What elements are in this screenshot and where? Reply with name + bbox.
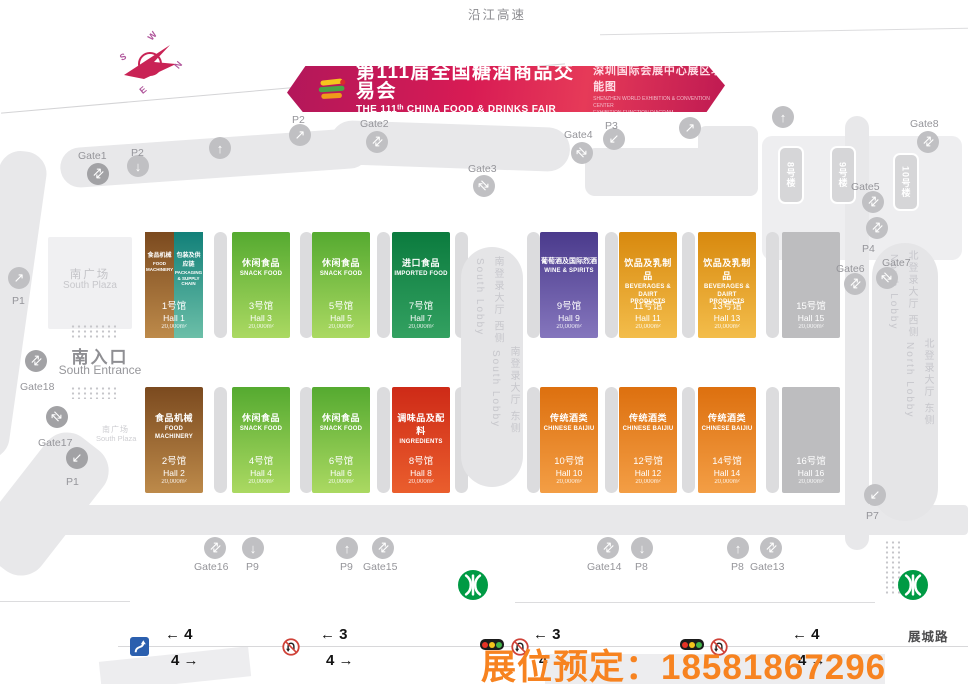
building-label: 10号楼 bbox=[900, 166, 913, 198]
gate-label: P1 bbox=[66, 476, 79, 488]
hall-category-en: SNACK FOOD bbox=[313, 426, 369, 434]
hall-number-cn: 1号馆 bbox=[145, 298, 203, 312]
hall-number-block: 9号馆Hall 920,000m² bbox=[540, 298, 598, 330]
south-entrance-label-en: South Entrance bbox=[50, 363, 150, 377]
gate-label: P8 bbox=[635, 561, 648, 573]
hall-hall-8: 调味品及配料INGREDIENTS8号馆Hall 820,000m² bbox=[392, 387, 450, 493]
hall-hall-2: 食品机械FOOD MACHINERY2号馆Hall 220,000m² bbox=[145, 387, 203, 493]
gate-label: Gate4 bbox=[564, 129, 593, 141]
lane-count-right: 4 → bbox=[326, 652, 354, 669]
Gate17-marker-icon: ⇅ bbox=[41, 401, 72, 432]
no-uturn-sign-icon bbox=[282, 638, 300, 656]
hall-number-cn: 12号馆 bbox=[619, 453, 677, 467]
hall-number-en: Hall 15 bbox=[782, 313, 840, 323]
banner-title-block: 第111届全国糖酒商品交易会 THE 111ᵗʰ CHINA FOOD & DR… bbox=[356, 63, 579, 115]
hall-hall-16: 16号馆Hall 1620,000m² bbox=[782, 387, 840, 493]
hall-area: 20,000m² bbox=[782, 324, 840, 330]
hall-category-cn: 葡萄酒及国际烈酒 bbox=[541, 256, 597, 266]
P1-marker-icon: ↗ bbox=[8, 267, 30, 289]
hall-hall-3: 休闲食品SNACK FOOD3号馆Hall 320,000m² bbox=[232, 232, 290, 338]
fair-logo-icon bbox=[317, 75, 348, 103]
metro-logo-icon bbox=[898, 570, 928, 600]
hall-category: 休闲食品SNACK FOOD bbox=[313, 256, 369, 279]
highway-label: 沿江高速 bbox=[468, 4, 526, 23]
hall-area: 20,000m² bbox=[312, 324, 370, 330]
banner-subtitle-en1: SHENZHEN WORLD EXHIBITION & CONVENTION C… bbox=[593, 96, 725, 110]
hall-number-cn: 7号馆 bbox=[392, 298, 450, 312]
north-lobby-east-label-en: North Lobby bbox=[904, 342, 915, 418]
hall-category-en: IMPORTED FOOD bbox=[393, 271, 449, 279]
hall-number-en: Hall 1 bbox=[145, 313, 203, 323]
hall-category: 食品机械FOOD MACHINERY bbox=[146, 250, 173, 272]
hall-number-cn: 13号馆 bbox=[698, 298, 756, 312]
hall-pillar bbox=[527, 232, 540, 338]
hall-area: 20,000m² bbox=[619, 324, 677, 330]
hall-hall-14: 传统酒类CHINESE BAIJIU14号馆Hall 1420,000m² bbox=[698, 387, 756, 493]
hall-area: 20,000m² bbox=[145, 324, 203, 330]
hall-category-cn: 休闲食品 bbox=[233, 256, 289, 269]
hall-number-en: Hall 4 bbox=[232, 468, 290, 478]
hall-number-en: Hall 3 bbox=[232, 313, 290, 323]
hall-category-cn: 传统酒类 bbox=[699, 411, 755, 424]
hall-number-block: 4号馆Hall 420,000m² bbox=[232, 453, 290, 485]
P1-marker-icon: ↙ bbox=[66, 447, 88, 469]
building-label: 8号楼 bbox=[785, 162, 798, 188]
booking-phone-text: 展位预定：18581867296 bbox=[481, 639, 886, 684]
hall-number-en: Hall 6 bbox=[312, 468, 370, 478]
hall-number-block: 16号馆Hall 1620,000m² bbox=[782, 453, 840, 485]
hall-pillar bbox=[214, 387, 227, 493]
hall-number-block: 15号馆Hall 1520,000m² bbox=[782, 298, 840, 330]
hall-area: 20,000m² bbox=[540, 479, 598, 485]
lane-count-left: ← 4 bbox=[165, 626, 193, 643]
hall-number-en: Hall 11 bbox=[619, 313, 677, 323]
lane-count-value: 4 bbox=[184, 626, 192, 643]
hall-number-block: 8号馆Hall 820,000m² bbox=[392, 453, 450, 485]
bottom-road-label: 展城路 bbox=[908, 626, 949, 645]
hall-number-block: 14号馆Hall 1420,000m² bbox=[698, 453, 756, 485]
hall-number-en: Hall 7 bbox=[392, 313, 450, 323]
gate-label: Gate8 bbox=[910, 118, 939, 130]
hall-number-block: 2号馆Hall 220,000m² bbox=[145, 453, 203, 485]
hall-category-en: FOOD MACHINERY bbox=[146, 426, 202, 441]
gate-label: P8 bbox=[731, 561, 744, 573]
south-plaza-label-en: South Plaza bbox=[56, 280, 124, 291]
south-lobby-east-label-cn: 南登录大厅 东侧 bbox=[506, 346, 521, 435]
hall-number-block: 6号馆Hall 620,000m² bbox=[312, 453, 370, 485]
hall-category: 传统酒类CHINESE BAIJIU bbox=[699, 411, 755, 434]
building-10: 10号楼 bbox=[893, 153, 919, 211]
gate-label: Gate14 bbox=[587, 561, 621, 573]
gate-label: P4 bbox=[862, 243, 875, 255]
u-turn-sign-icon bbox=[130, 637, 149, 656]
hall-area: 20,000m² bbox=[698, 324, 756, 330]
hall-area: 20,000m² bbox=[540, 324, 598, 330]
hall-number-en: Hall 5 bbox=[312, 313, 370, 323]
hall-category: 传统酒类CHINESE BAIJIU bbox=[541, 411, 597, 434]
banner-subtitle-en2: EXHIBITION FUNCTION DIAGRAM bbox=[593, 110, 725, 117]
hall-number-block: 10号馆Hall 1020,000m² bbox=[540, 453, 598, 485]
south-plaza-small-label-en: South Plaza bbox=[96, 434, 136, 443]
metro-logo-icon bbox=[458, 570, 488, 600]
gate-label: Gate15 bbox=[363, 561, 397, 573]
hall-category-cn: 传统酒类 bbox=[620, 411, 676, 424]
south-lobby-east-label-en: South Lobby bbox=[490, 350, 501, 428]
hall-category-cn: 饮品及乳制品 bbox=[620, 256, 676, 282]
hall-number-cn: 15号馆 bbox=[782, 298, 840, 312]
Gate18-marker-icon: ⇅ bbox=[20, 345, 51, 376]
hall-pillar bbox=[377, 232, 390, 338]
hall-category-en: WINE & SPIRITS bbox=[541, 268, 597, 276]
hall-pillar bbox=[214, 232, 227, 338]
road-shape bbox=[698, 126, 758, 196]
arrow-left-icon: ← bbox=[165, 626, 184, 643]
lane-count-left: ← 3 bbox=[320, 626, 348, 643]
hall-category: 葡萄酒及国际烈酒WINE & SPIRITS bbox=[541, 256, 597, 276]
gate-label: Gate1 bbox=[78, 150, 107, 162]
hall-category: 休闲食品SNACK FOOD bbox=[233, 411, 289, 434]
gate-label: Gate7 bbox=[882, 257, 911, 269]
gate-label: Gate2 bbox=[360, 118, 389, 130]
gate-label: Gate18 bbox=[20, 381, 54, 393]
hall-number-en: Hall 16 bbox=[782, 468, 840, 478]
hall-area: 20,000m² bbox=[312, 479, 370, 485]
gate-label: P1 bbox=[12, 295, 25, 307]
arrow-right-icon: → bbox=[179, 652, 198, 669]
gate-label: Gate6 bbox=[836, 263, 865, 275]
hall-hall-5: 休闲食品SNACK FOOD5号馆Hall 520,000m² bbox=[312, 232, 370, 338]
hall-category-cn: 休闲食品 bbox=[233, 411, 289, 424]
hall-number-cn: 2号馆 bbox=[145, 453, 203, 467]
hall-number-cn: 5号馆 bbox=[312, 298, 370, 312]
hall-category-cn: 休闲食品 bbox=[313, 411, 369, 424]
hall-category-cn: 饮品及乳制品 bbox=[699, 256, 755, 282]
P9-marker-icon: ↓ bbox=[242, 537, 264, 559]
hall-category-cn: 传统酒类 bbox=[541, 411, 597, 424]
hall-area: 20,000m² bbox=[619, 479, 677, 485]
hall-number-cn: 6号馆 bbox=[312, 453, 370, 467]
Gate13-marker-icon: ⇅ bbox=[755, 532, 786, 563]
hall-category: 进口食品IMPORTED FOOD bbox=[393, 256, 449, 279]
escalator-dots bbox=[70, 386, 116, 399]
hall-number-cn: 3号馆 bbox=[232, 298, 290, 312]
building-8: 8号楼 bbox=[778, 146, 804, 204]
hall-number-en: Hall 10 bbox=[540, 468, 598, 478]
compass-icon: W S N E bbox=[118, 34, 184, 96]
road-shape bbox=[60, 505, 968, 535]
hall-number-en: Hall 8 bbox=[392, 468, 450, 478]
hall-number-en: Hall 2 bbox=[145, 468, 203, 478]
hall-hall-15: 15号馆Hall 1520,000m² bbox=[782, 232, 840, 338]
hall-area: 20,000m² bbox=[392, 324, 450, 330]
hall-hall-1: 食品机械FOOD MACHINERY包装及供应链PACKAGING & SUPP… bbox=[145, 232, 203, 338]
gate-marker-icon: ↑ bbox=[209, 137, 231, 159]
hall-number-cn: 4号馆 bbox=[232, 453, 290, 467]
gate-label: P2 bbox=[292, 114, 305, 126]
banner-subtitle-en: SHENZHEN WORLD EXHIBITION & CONVENTION C… bbox=[593, 96, 725, 117]
hall-number-block: 7号馆Hall 720,000m² bbox=[392, 298, 450, 330]
hall-pillar bbox=[605, 387, 618, 493]
P7-marker-icon: ↙ bbox=[864, 484, 886, 506]
hall-number-cn: 16号馆 bbox=[782, 453, 840, 467]
hall-number-en: Hall 14 bbox=[698, 468, 756, 478]
south-lobby-west-label-cn: 南登录大厅 西侧 bbox=[490, 256, 505, 345]
exhibition-map: 沿江高速 W S N E 第111届全国糖酒商品交易会 THE 111ᵗʰ CH… bbox=[0, 0, 968, 684]
P2-marker-icon: ↗ bbox=[289, 124, 311, 146]
hall-category-cn: 休闲食品 bbox=[313, 256, 369, 269]
hall-category: 休闲食品SNACK FOOD bbox=[233, 256, 289, 279]
hall-number-cn: 14号馆 bbox=[698, 453, 756, 467]
hall-number-cn: 8号馆 bbox=[392, 453, 450, 467]
gate-marker-icon: ↗ bbox=[679, 117, 701, 139]
hall-category: 调味品及配料INGREDIENTS bbox=[393, 411, 449, 447]
hall-area: 20,000m² bbox=[782, 479, 840, 485]
hall-number-block: 13号馆Hall 1320,000m² bbox=[698, 298, 756, 330]
gate-label: Gate5 bbox=[851, 181, 880, 193]
road-shape bbox=[515, 602, 875, 603]
gate-label: P3 bbox=[605, 120, 618, 132]
gate-label: Gate17 bbox=[38, 437, 72, 449]
hall-number-cn: 9号馆 bbox=[540, 298, 598, 312]
hall-pillar bbox=[377, 387, 390, 493]
Gate14-marker-icon: ⇅ bbox=[592, 532, 623, 563]
north-lobby-east-label-cn: 北登录大厅 东侧 bbox=[920, 338, 935, 427]
gate-label: Gate3 bbox=[468, 163, 497, 175]
lane-count-right: 4 → bbox=[171, 652, 199, 669]
hall-hall-7: 进口食品IMPORTED FOOD7号馆Hall 720,000m² bbox=[392, 232, 450, 338]
gate-label: P2 bbox=[131, 147, 144, 159]
arrow-left-icon: ← bbox=[320, 626, 339, 643]
gate-label: P7 bbox=[866, 510, 879, 522]
hall-category-en: CHINESE BAIJIU bbox=[541, 426, 597, 434]
hall-number-block: 1号馆Hall 120,000m² bbox=[145, 298, 203, 330]
hall-category: 食品机械FOOD MACHINERY bbox=[146, 411, 202, 441]
hall-pillar bbox=[766, 232, 779, 338]
building-9: 9号楼 bbox=[830, 146, 856, 204]
hall-pillar bbox=[605, 232, 618, 338]
hall-category-cn: 包装及供应链 bbox=[175, 250, 202, 268]
arrow-right-icon: → bbox=[334, 652, 353, 669]
hall-area: 20,000m² bbox=[698, 479, 756, 485]
hall-category-en: FOOD MACHINERY bbox=[146, 261, 173, 272]
hall-category-cn: 进口食品 bbox=[393, 256, 449, 269]
P8-marker-icon: ↑ bbox=[727, 537, 749, 559]
gate-label: Gate13 bbox=[750, 561, 784, 573]
hall-number-block: 12号馆Hall 1220,000m² bbox=[619, 453, 677, 485]
hall-category-cn: 食品机械 bbox=[146, 250, 173, 259]
hall-number-en: Hall 12 bbox=[619, 468, 677, 478]
event-banner: 第111届全国糖酒商品交易会 THE 111ᵗʰ CHINA FOOD & DR… bbox=[287, 66, 725, 112]
hall-number-en: Hall 9 bbox=[540, 313, 598, 323]
south-lobby-west-label-en: South Lobby bbox=[474, 258, 485, 336]
gate-marker-icon: ↑ bbox=[772, 106, 794, 128]
hall-pillar bbox=[766, 387, 779, 493]
hall-pillar bbox=[682, 232, 695, 338]
hall-area: 20,000m² bbox=[392, 479, 450, 485]
banner-subtitle-cn: 深圳国际会展中心展区功能图 bbox=[593, 62, 725, 94]
hall-category-en: INGREDIENTS bbox=[393, 439, 449, 447]
hall-hall-12: 传统酒类CHINESE BAIJIU12号馆Hall 1220,000m² bbox=[619, 387, 677, 493]
hall-area: 20,000m² bbox=[145, 479, 203, 485]
building-label: 9号楼 bbox=[837, 162, 850, 188]
gate-label: P9 bbox=[340, 561, 353, 573]
hall-area: 20,000m² bbox=[232, 479, 290, 485]
hall-hall-13: 饮品及乳制品BEVERAGES & DAIRT PRODUCTS13号馆Hall… bbox=[698, 232, 756, 338]
hall-pillar bbox=[682, 387, 695, 493]
hall-number-cn: 11号馆 bbox=[619, 298, 677, 312]
hall-category-cn: 调味品及配料 bbox=[393, 411, 449, 437]
hall-category-en: SNACK FOOD bbox=[233, 271, 289, 279]
lane-count-value: 3 bbox=[339, 626, 347, 643]
hall-number-en: Hall 13 bbox=[698, 313, 756, 323]
hall-pillar bbox=[527, 387, 540, 493]
hall-category: 包装及供应链PACKAGING & SUPPLY CHAIN bbox=[175, 250, 202, 287]
hall-number-block: 3号馆Hall 320,000m² bbox=[232, 298, 290, 330]
banner-subtitle-block: 深圳国际会展中心展区功能图 SHENZHEN WORLD EXHIBITION … bbox=[593, 62, 725, 117]
hall-hall-9: 葡萄酒及国际烈酒WINE & SPIRITS9号馆Hall 920,000m² bbox=[540, 232, 598, 338]
hall-hall-11: 饮品及乳制品BEVERAGES & DAIRT PRODUCTS11号馆Hall… bbox=[619, 232, 677, 338]
hall-category-en: PACKAGING & SUPPLY CHAIN bbox=[175, 270, 202, 287]
hall-category-cn: 食品机械 bbox=[146, 411, 202, 424]
banner-title-cn: 第111届全国糖酒商品交易会 bbox=[356, 63, 579, 101]
hall-category-en: CHINESE BAIJIU bbox=[620, 426, 676, 434]
escalator-dots bbox=[70, 324, 116, 340]
Gate3-marker-icon: ⇅ bbox=[468, 170, 499, 201]
hall-hall-4: 休闲食品SNACK FOOD4号馆Hall 420,000m² bbox=[232, 387, 290, 493]
hall-hall-6: 休闲食品SNACK FOOD6号馆Hall 620,000m² bbox=[312, 387, 370, 493]
gate-label: P9 bbox=[246, 561, 259, 573]
hall-number-block: 5号馆Hall 520,000m² bbox=[312, 298, 370, 330]
hall-category: 休闲食品SNACK FOOD bbox=[313, 411, 369, 434]
road-shape bbox=[600, 28, 968, 35]
Gate16-marker-icon: ⇅ bbox=[199, 532, 230, 563]
banner-title-en: THE 111ᵗʰ CHINA FOOD & DRINKS FAIR bbox=[356, 104, 579, 115]
Gate15-marker-icon: ⇅ bbox=[367, 532, 398, 563]
hall-category: 传统酒类CHINESE BAIJIU bbox=[620, 411, 676, 434]
hall-number-block: 11号馆Hall 1120,000m² bbox=[619, 298, 677, 330]
hall-hall-10: 传统酒类CHINESE BAIJIU10号馆Hall 1020,000m² bbox=[540, 387, 598, 493]
hall-category-en: CHINESE BAIJIU bbox=[699, 426, 755, 434]
P8-marker-icon: ↓ bbox=[631, 537, 653, 559]
hall-number-cn: 10号馆 bbox=[540, 453, 598, 467]
hall-area: 20,000m² bbox=[232, 324, 290, 330]
P9-marker-icon: ↑ bbox=[336, 537, 358, 559]
hall-category-en: SNACK FOOD bbox=[313, 271, 369, 279]
road-shape bbox=[0, 601, 130, 602]
hall-category-en: SNACK FOOD bbox=[233, 426, 289, 434]
gate-label: Gate16 bbox=[194, 561, 228, 573]
